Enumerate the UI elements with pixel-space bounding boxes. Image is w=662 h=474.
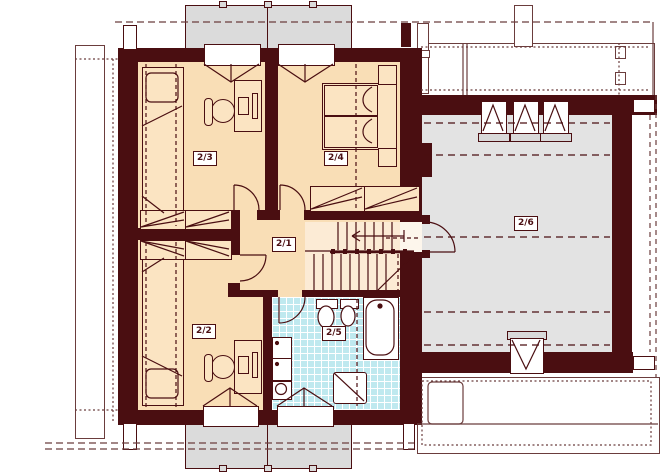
room-label-2-1: 2/1 xyxy=(272,237,296,252)
terrace-post xyxy=(463,43,467,95)
terrace-bottom-dotted-rect xyxy=(422,381,651,445)
plan-linework xyxy=(0,0,662,474)
door-2-3 xyxy=(234,185,259,210)
bed-2-4-pillows xyxy=(363,87,372,143)
eave-ties xyxy=(75,59,118,410)
terrace-top-dotted xyxy=(421,47,649,90)
shower-diagonal xyxy=(334,373,364,401)
room-label-2-2: 2/2 xyxy=(192,324,216,339)
toilet-bowl xyxy=(318,306,334,328)
roof-bottom-dashed-lines xyxy=(45,443,414,449)
room-label-2-5: 2/5 xyxy=(322,326,346,341)
window-symbol-2-3 xyxy=(204,64,259,82)
stairs-treads xyxy=(305,222,420,290)
knee-wall-dashed-west xyxy=(146,64,176,408)
door-2-5 xyxy=(279,297,305,323)
window-symbol-2-2 xyxy=(203,388,257,406)
bidet-bowl xyxy=(341,306,355,326)
window-symbol-2-4 xyxy=(278,64,333,82)
bathtub-basin xyxy=(366,300,394,355)
attic-height-dashed-lines xyxy=(424,123,610,345)
floor-plan: 2/1 2/2 2/3 2/4 2/5 2/6 xyxy=(0,0,662,474)
window-symbol-2-5 xyxy=(277,388,332,406)
room-label-2-3: 2/3 xyxy=(193,151,217,166)
door-2-4 xyxy=(280,185,305,210)
room-label-2-6: 2/6 xyxy=(514,216,538,231)
door-2-2 xyxy=(240,255,266,281)
washer-dryer-details xyxy=(276,342,287,395)
stairs-direction-arrow xyxy=(352,230,404,242)
room-label-2-4: 2/4 xyxy=(324,151,348,166)
terrace-bottom-inner-rect xyxy=(428,382,463,424)
